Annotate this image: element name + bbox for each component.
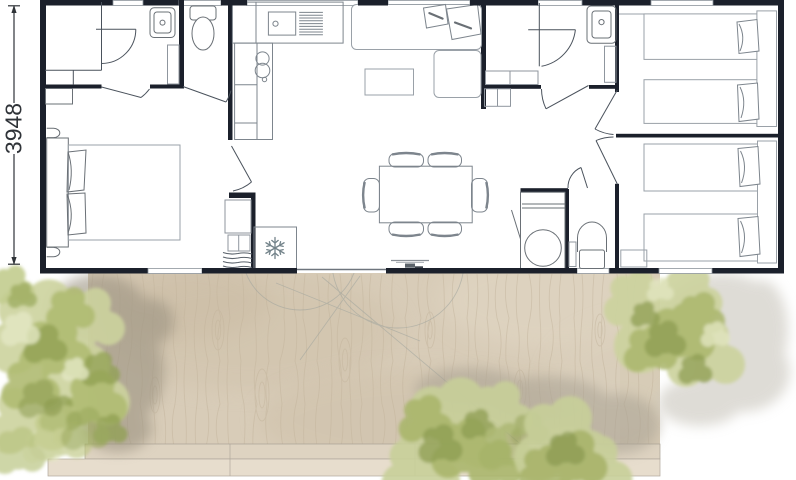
svg-text:3948: 3948 (1, 103, 27, 154)
